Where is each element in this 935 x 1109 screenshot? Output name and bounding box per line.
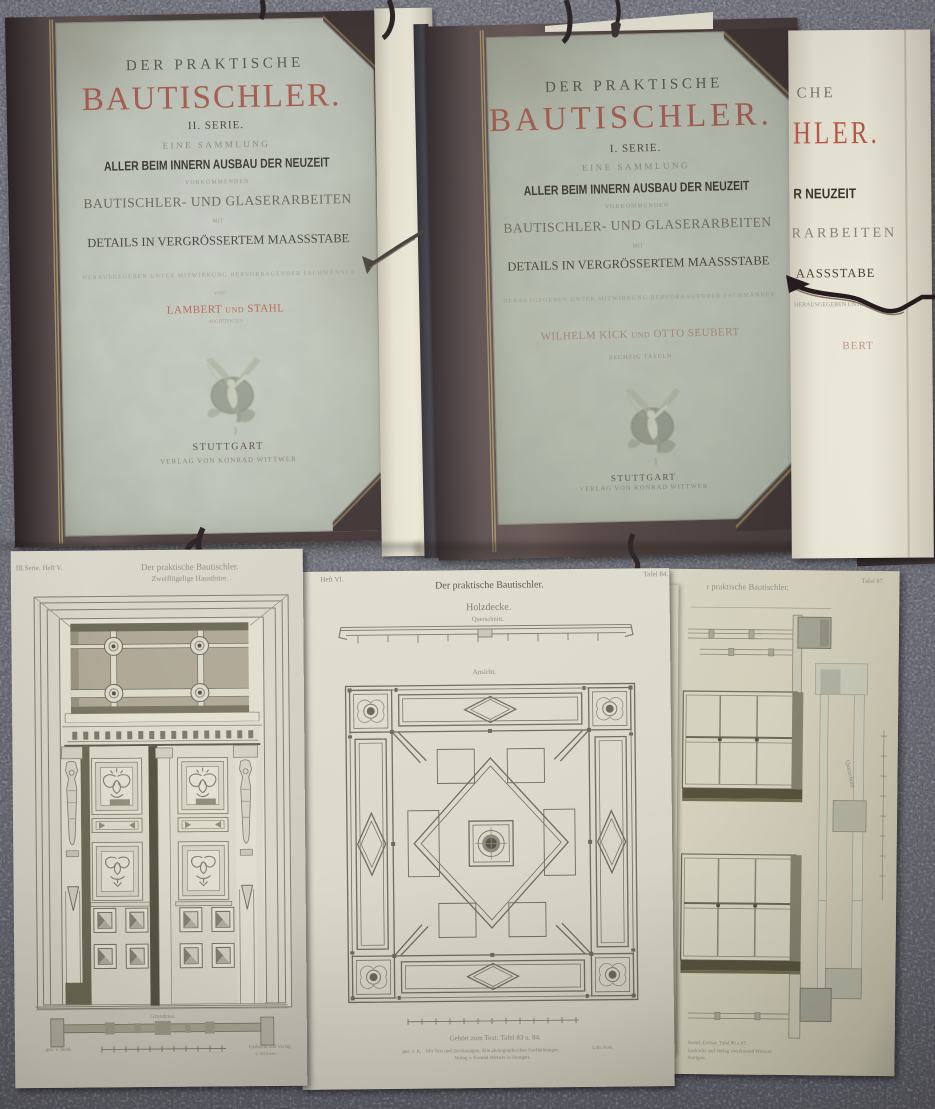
svg-text:Tafel 84.: Tafel 84.: [643, 570, 668, 578]
svg-text:Der praktische Bautischler.: Der praktische Bautischler.: [141, 561, 239, 572]
svg-text:r praktische Bautischler.: r praktische Bautischler.: [706, 581, 788, 592]
svg-text:gez. v. K.: gez. v. K.: [402, 1050, 421, 1055]
svg-text:Mit Text und Zeichnungen. Alle: Mit Text und Zeichnungen. Alle photograp…: [426, 1048, 559, 1054]
svg-text:Zweiflügelige Hausthüre.: Zweiflügelige Hausthüre.: [152, 573, 229, 583]
svg-text:Ansicht.: Ansicht.: [473, 668, 497, 676]
svg-text:Tafel 87.: Tafel 87.: [861, 578, 884, 585]
svg-text:III.Serie. Heft V.: III.Serie. Heft V.: [16, 564, 63, 572]
svg-text:Verlag v. Konrad Wittwer in St: Verlag v. Konrad Wittwer in Stuttgart.: [454, 1056, 530, 1062]
svg-text:Natürl. Grösse. Tafel 86 u.87.: Natürl. Grösse. Tafel 86 u.87.: [688, 1041, 747, 1047]
svg-text:Gedruckt und Verlag von Konrad: Gedruckt und Verlag von Konrad Wittwer.: [688, 1049, 773, 1055]
svg-text:Querschnitt.: Querschnitt.: [472, 616, 504, 623]
svg-text:Der praktische Bautischler.: Der praktische Bautischler.: [435, 579, 544, 591]
svg-text:gez. v. Stahl.: gez. v. Stahl.: [46, 1048, 72, 1053]
svg-text:Heft VI.: Heft VI.: [320, 575, 344, 583]
svg-text:Stuttgart.: Stuttgart.: [687, 1056, 706, 1061]
svg-text:Grundriss.: Grundriss.: [150, 1014, 176, 1020]
svg-text:Gehört zum Text: Tafel 83 u. 8: Gehört zum Text: Tafel 83 u. 84.: [449, 1033, 541, 1042]
svg-text:Gedruckt und Verlag: Gedruckt und Verlag: [249, 1045, 291, 1050]
svg-text:Holzdecke.: Holzdecke.: [466, 602, 511, 613]
svg-text:v. Wittwer.: v. Wittwer.: [255, 1052, 277, 1057]
svg-text:Lith. Anst.: Lith. Anst.: [592, 1046, 613, 1051]
